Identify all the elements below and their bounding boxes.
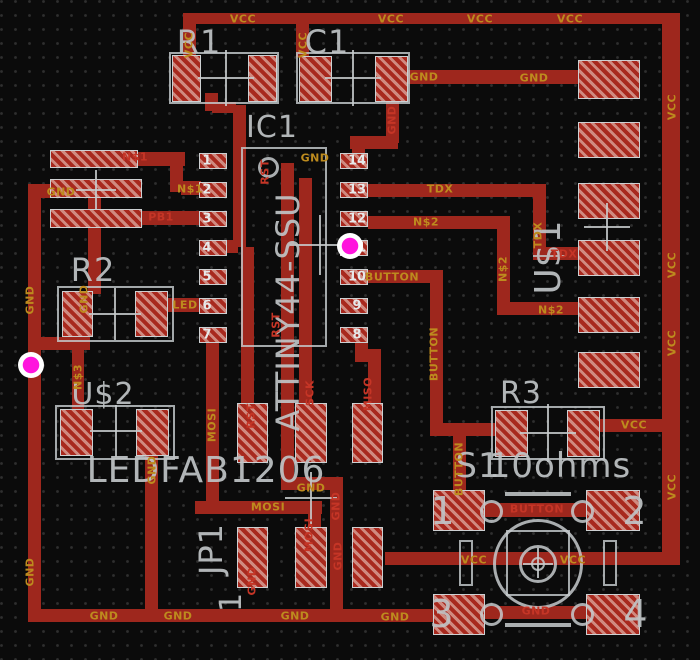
- S1-ring-4: [571, 603, 594, 626]
- net-label-vcc: VCC: [184, 32, 195, 58]
- net-label-gnd: GND: [522, 606, 551, 617]
- net-label-gnd: GND: [410, 72, 439, 83]
- ic-pin-number-2: 2: [202, 184, 211, 197]
- net-label-n3: N$3: [73, 364, 84, 390]
- net-label-vcc: VCC: [467, 14, 493, 25]
- ic-pin-number-8: 8: [352, 329, 361, 342]
- net-label-vcc: VCC: [378, 14, 404, 25]
- silk-label-1: 1: [430, 492, 455, 530]
- ic-pin-number-7: 7: [202, 329, 211, 342]
- silk-line: [114, 288, 116, 340]
- silk-line: [505, 623, 571, 627]
- net-label-gnd: GND: [387, 106, 398, 135]
- net-label-mosi: MOSI: [207, 408, 218, 442]
- net-label-pb1: PB1: [148, 212, 174, 223]
- net-label-gnd: GND: [281, 611, 310, 622]
- silk-line: [537, 548, 539, 578]
- silk-line: [95, 170, 97, 210]
- net-label-gnd: GND: [79, 285, 90, 314]
- net-label-vcc: VCC: [560, 555, 586, 566]
- net-label-tdx: TDX: [551, 249, 578, 260]
- ic-pin-number-5: 5: [202, 271, 211, 284]
- silk-line: [352, 50, 354, 106]
- net-label-vcc: VCC: [667, 330, 678, 356]
- net-label-tdx: TDX: [533, 222, 544, 249]
- net-label-n1: N$1: [122, 152, 148, 163]
- S1-right-stem[interactable]: [603, 540, 617, 586]
- silk-label-jp1: JP1: [195, 523, 227, 575]
- ic-pin-number-6: 6: [202, 300, 211, 313]
- net-label-vcc: VCC: [230, 14, 256, 25]
- silk-label-10ohms: 10ohms: [489, 449, 631, 483]
- net-label-n2: N$2: [538, 305, 564, 316]
- smd-pad-u1[interactable]: [578, 183, 640, 219]
- net-label-gnd: GND: [381, 612, 410, 623]
- smd-pad-u1[interactable]: [578, 352, 640, 388]
- S1-ring-2: [571, 500, 594, 523]
- net-label-gnd: GND: [147, 456, 158, 485]
- net-label-n2: N$2: [498, 256, 509, 282]
- net-label-gnd: GND: [25, 286, 36, 315]
- silk-label-ic1: IC1: [246, 113, 298, 143]
- net-label-mosi: MOSI: [304, 518, 315, 552]
- net-label-led: LED: [172, 300, 197, 311]
- silk-label-2: 2: [622, 492, 647, 530]
- net-label-gnd: GND: [333, 542, 344, 571]
- net-label-gnd: GND: [301, 153, 330, 164]
- smd-pad-u1[interactable]: [578, 240, 640, 276]
- net-label-gnd: GND: [247, 567, 258, 596]
- silk-label-1: 1: [217, 592, 247, 612]
- silk-line: [505, 492, 571, 496]
- net-label-button: BUTTON: [365, 272, 419, 283]
- net-label-mosi: MOSI: [251, 502, 285, 513]
- net-label-gnd: GND: [331, 492, 342, 521]
- net-label-gnd: GND: [25, 558, 36, 587]
- silk-label-ledfab1206: LEDFAB1206: [87, 453, 326, 489]
- smd-pad-u1[interactable]: [578, 122, 640, 158]
- net-label-n2: N$2: [413, 217, 439, 228]
- ic-pin-number-9: 9: [352, 300, 361, 313]
- smd-pad-u1[interactable]: [578, 60, 640, 99]
- net-label-sck: SCK: [305, 380, 316, 406]
- ic-pin-number-3: 3: [202, 213, 211, 226]
- silk-line: [606, 203, 608, 251]
- net-label-tdx: TDX: [427, 184, 454, 195]
- net-label-vcc: VCC: [461, 555, 487, 566]
- net-label-rst: RST: [260, 159, 271, 184]
- net-label-gnd: GND: [297, 483, 326, 494]
- net-label-gnd: GND: [164, 611, 193, 622]
- silk-line: [319, 215, 321, 275]
- ic-pin-number-10: 10: [348, 271, 366, 284]
- silk-line: [225, 50, 227, 106]
- click-marker: [18, 352, 44, 378]
- net-label-n1: N$1: [177, 184, 203, 195]
- net-label-button: BUTTON: [429, 327, 440, 381]
- smd-pad-u1[interactable]: [578, 297, 640, 333]
- silk-label-4: 4: [623, 595, 648, 633]
- smd-pad-jp1[interactable]: [352, 403, 383, 463]
- copper-trace-tdx[interactable]: [368, 184, 546, 197]
- net-label-miso: MISO: [363, 377, 374, 411]
- silk-label-r3: R3: [500, 379, 542, 409]
- net-label-gnd: GND: [90, 611, 119, 622]
- ic-pin-number-12: 12: [348, 213, 366, 226]
- net-label-button: BUTTON: [510, 504, 564, 515]
- ic-pin-number-1: 1: [202, 155, 211, 168]
- net-label-button: BUTTON: [454, 442, 465, 496]
- smd-pad-jp1[interactable]: [352, 527, 383, 588]
- ic-pin-number-13: 13: [348, 184, 366, 197]
- pcb-canvas[interactable]: R1C1IC1ATTINY44-SSUR2U$2LEDFAB1206JP11R3…: [0, 0, 700, 660]
- silk-label-c1: C1: [305, 26, 350, 58]
- net-label-rst: RST: [271, 312, 282, 337]
- silk-label-r2: R2: [71, 254, 116, 286]
- click-marker: [337, 233, 363, 259]
- copper-trace-gnd[interactable]: [28, 184, 41, 622]
- smd-pad-conn[interactable]: [50, 209, 142, 228]
- silk-label-3: 3: [429, 595, 454, 633]
- ic-pin-number-14: 14: [348, 155, 366, 168]
- ic-pin-number-4: 4: [202, 242, 211, 255]
- net-label-vcc: VCC: [557, 14, 583, 25]
- net-label-vcc: VCC: [667, 252, 678, 278]
- S1-ring-1: [480, 500, 503, 523]
- S1-ring-3: [480, 603, 503, 626]
- net-label-vcc: VCC: [667, 94, 678, 120]
- net-label-gnd: GND: [520, 73, 549, 84]
- net-label-vcc: VCC: [298, 32, 309, 58]
- net-label-rst: RST: [246, 403, 257, 428]
- net-label-gnd: GND: [47, 187, 76, 198]
- net-label-vcc: VCC: [667, 474, 678, 500]
- net-label-vcc: VCC: [621, 420, 647, 431]
